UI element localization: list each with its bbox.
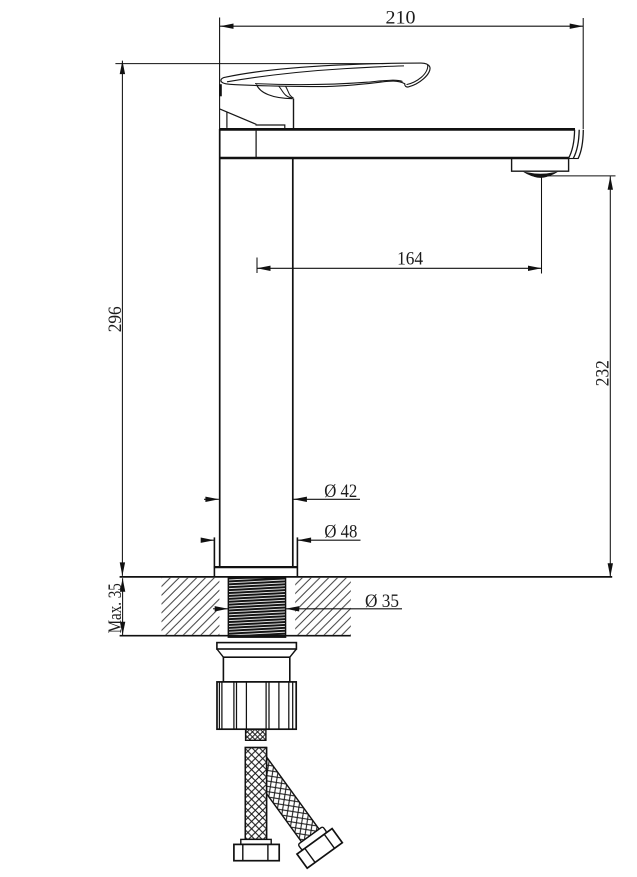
svg-text:296: 296: [105, 306, 126, 332]
svg-text:Ø 35: Ø 35: [365, 591, 399, 612]
svg-text:Ø 42: Ø 42: [324, 481, 357, 502]
svg-text:210: 210: [386, 8, 416, 29]
svg-text:164: 164: [397, 248, 423, 269]
svg-text:Ø 48: Ø 48: [324, 521, 357, 542]
svg-text:232: 232: [592, 360, 613, 386]
svg-text:Max. 35: Max. 35: [105, 583, 126, 633]
